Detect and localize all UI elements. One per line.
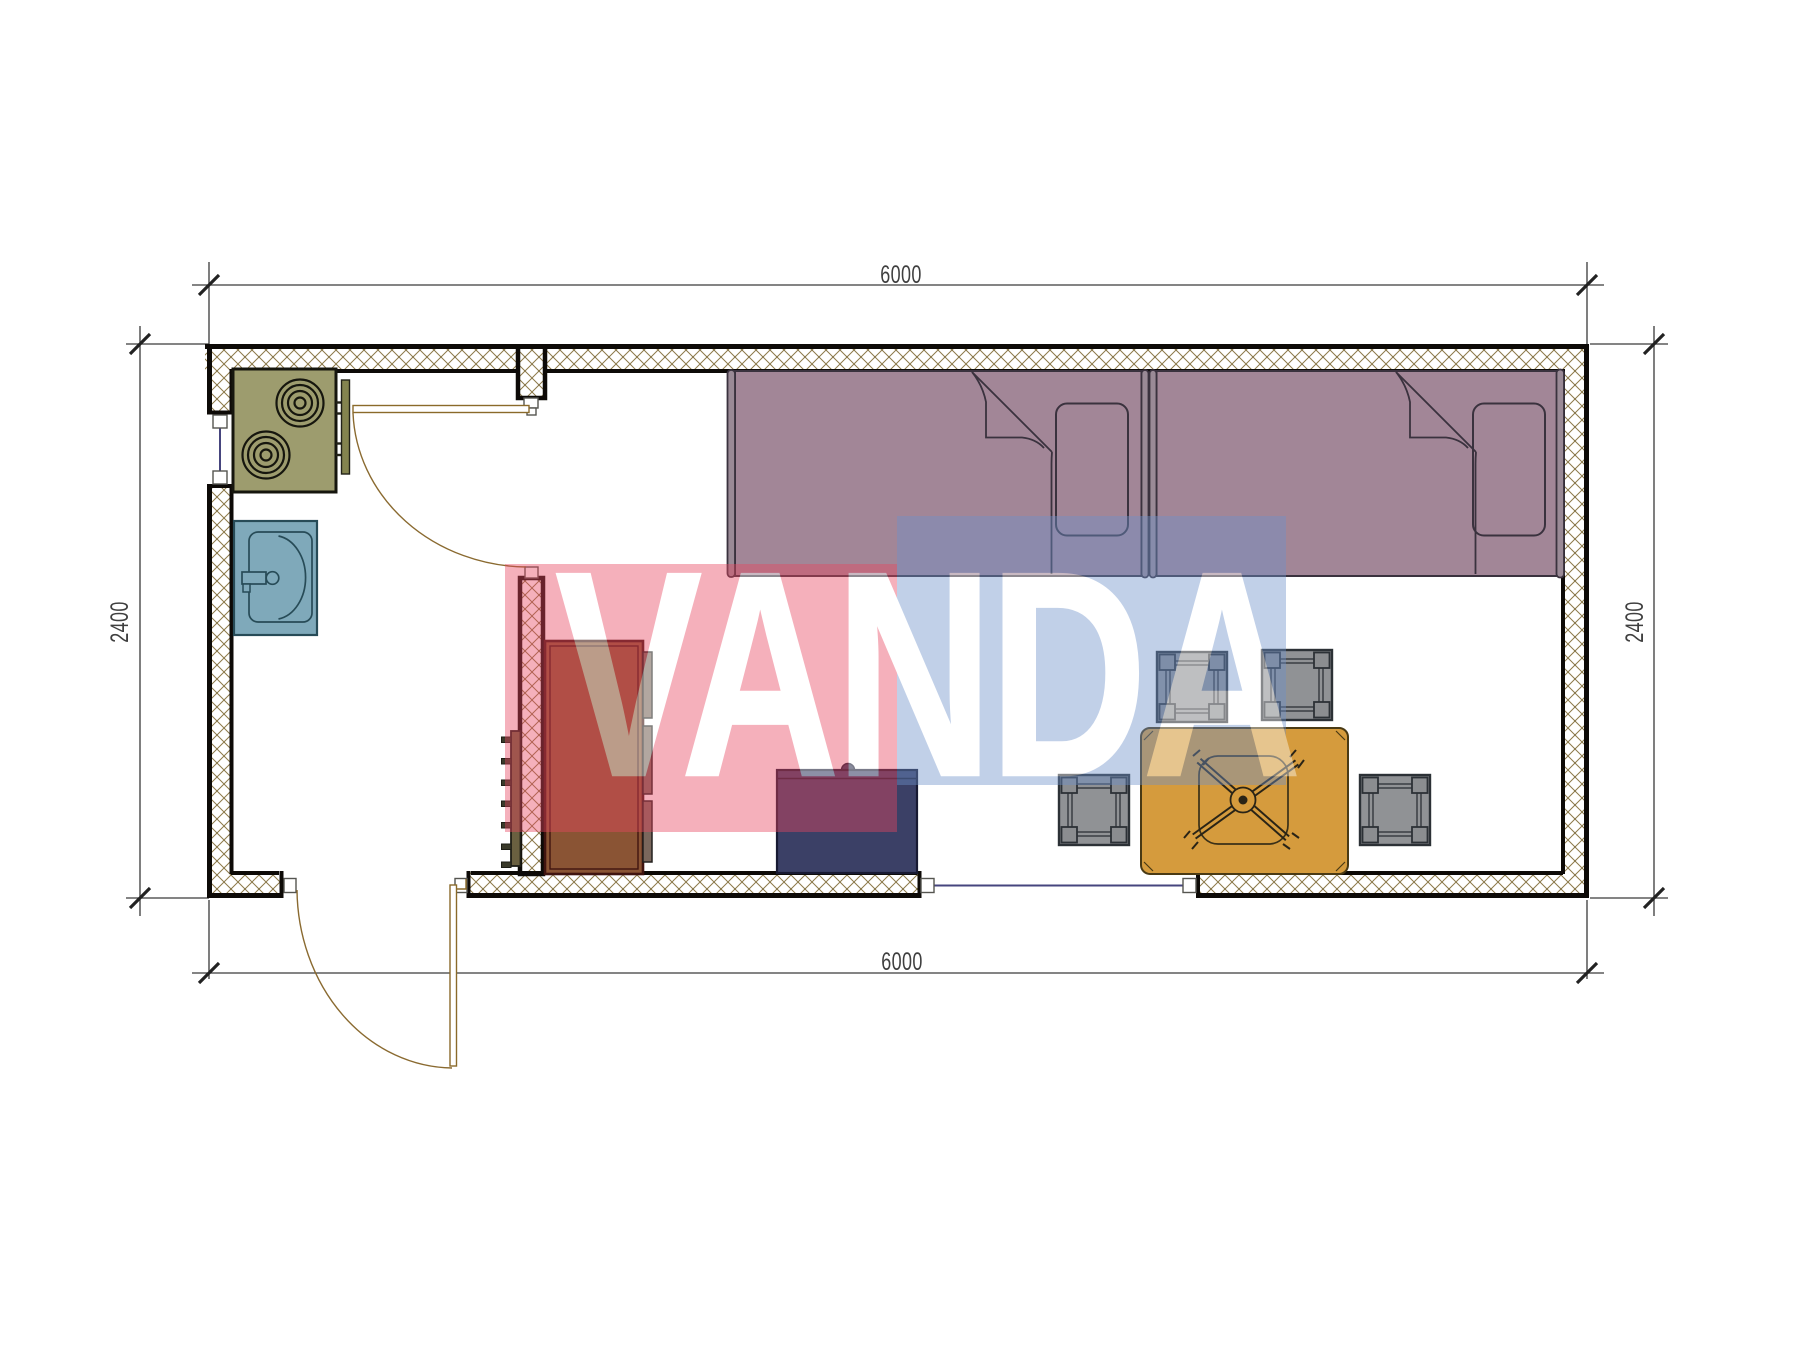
svg-text:6000: 6000 (880, 260, 921, 289)
svg-text:2400: 2400 (1620, 601, 1649, 642)
svg-text:VANDA: VANDA (555, 511, 1297, 838)
svg-text:2400: 2400 (105, 601, 134, 642)
svg-text:6000: 6000 (881, 947, 922, 976)
